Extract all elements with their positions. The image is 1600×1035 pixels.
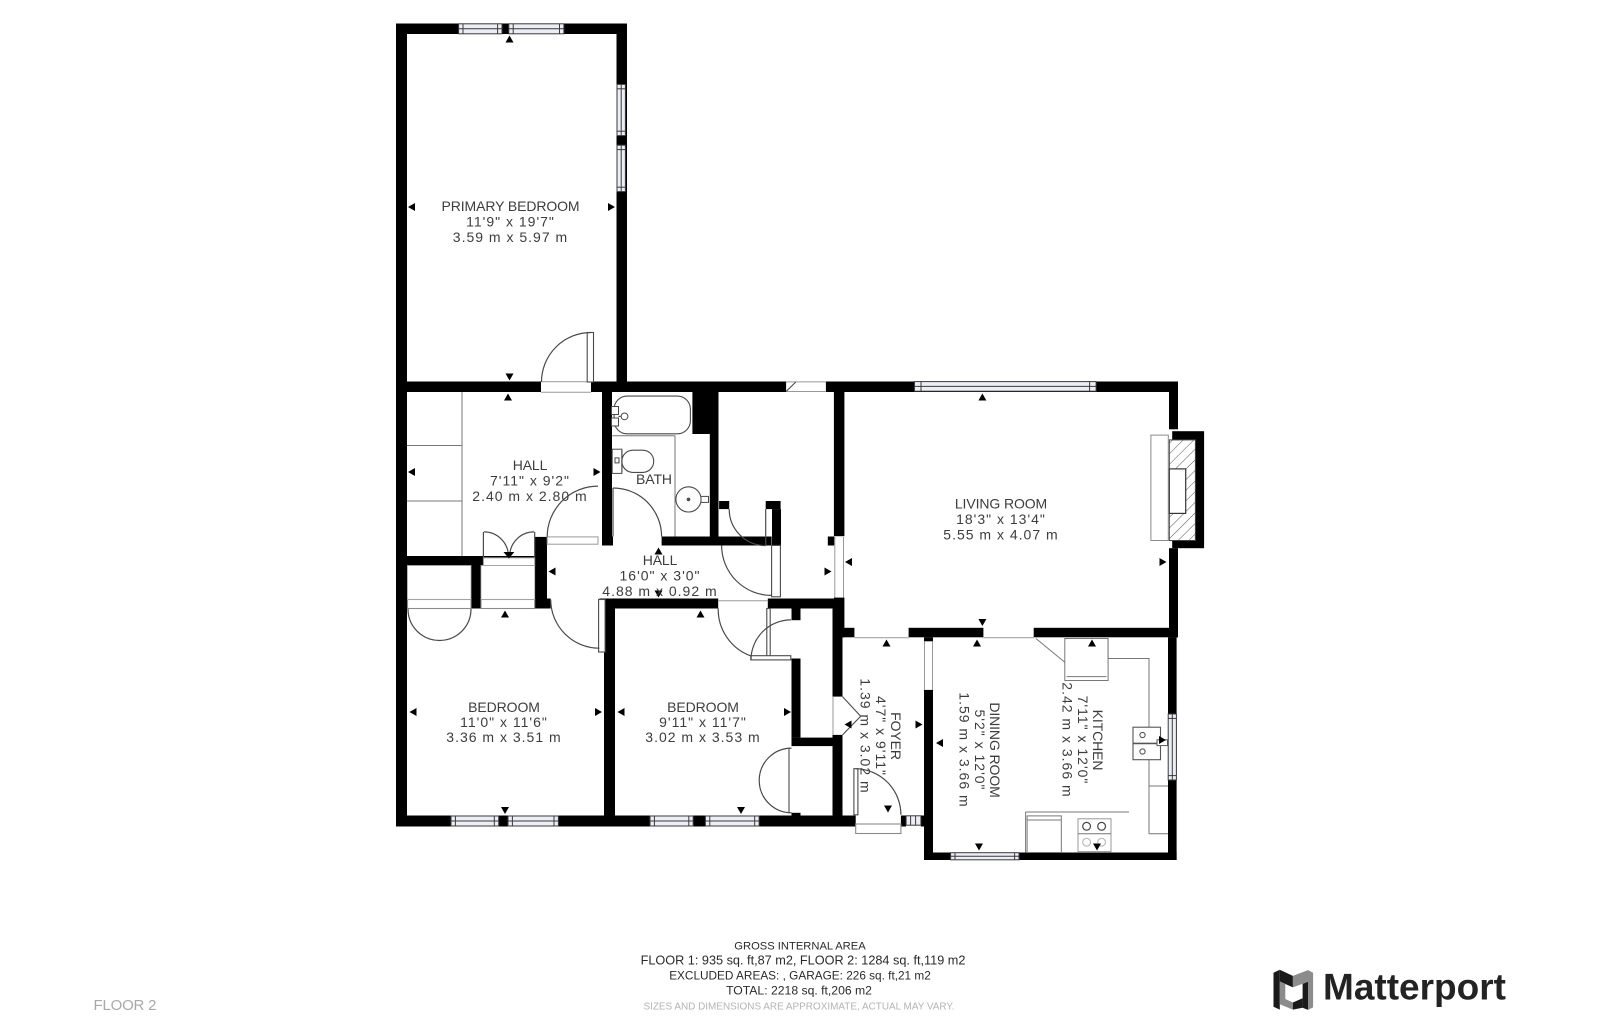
svg-text:11'0" x 11'6": 11'0" x 11'6" [460,714,548,730]
svg-text:GROSS INTERNAL AREA: GROSS INTERNAL AREA [734,941,866,953]
svg-text:11'9" x 19'7": 11'9" x 19'7" [466,214,555,230]
svg-text:KITCHEN: KITCHEN [1090,710,1106,771]
svg-text:FOYER: FOYER [888,712,904,760]
svg-text:Matterport: Matterport [1323,967,1506,1008]
svg-text:TOTAL: 2218 sq. ft,206 m2: TOTAL: 2218 sq. ft,206 m2 [726,984,872,998]
svg-text:4.88 m x 0.92 m: 4.88 m x 0.92 m [602,583,717,599]
svg-text:7'11" x 9'2": 7'11" x 9'2" [490,472,570,488]
svg-text:FLOOR 2: FLOOR 2 [94,997,157,1014]
svg-text:2.42 m x 3.66 m: 2.42 m x 3.66 m [1059,682,1075,797]
svg-text:DINING ROOM: DINING ROOM [987,702,1003,797]
svg-text:2.40 m x 2.80 m: 2.40 m x 2.80 m [472,488,587,504]
svg-text:LIVING ROOM: LIVING ROOM [955,496,1047,512]
svg-text:9'11" x 11'7": 9'11" x 11'7" [659,714,747,730]
svg-text:5'2" x 12'0": 5'2" x 12'0" [972,710,988,791]
svg-text:3.36 m x 3.51 m: 3.36 m x 3.51 m [446,729,561,745]
svg-text:18'3" x 13'4": 18'3" x 13'4" [956,511,1046,527]
svg-text:EXCLUDED AREAS: , GARAGE: 226: EXCLUDED AREAS: , GARAGE: 226 sq. ft,21 … [669,969,931,983]
svg-text:BEDROOM: BEDROOM [667,699,739,715]
svg-text:1.39 m x 3.02 m: 1.39 m x 3.02 m [857,678,873,793]
svg-text:FLOOR 1: 935 sq. ft,87 m2, FLO: FLOOR 1: 935 sq. ft,87 m2, FLOOR 2: 1284… [641,954,966,968]
svg-text:PRIMARY BEDROOM: PRIMARY BEDROOM [441,198,579,214]
svg-text:BEDROOM: BEDROOM [468,699,540,715]
svg-text:1.59 m x 3.66 m: 1.59 m x 3.66 m [956,692,972,807]
svg-text:3.59 m x 5.97 m: 3.59 m x 5.97 m [453,229,568,245]
svg-text:HALL: HALL [513,457,548,473]
svg-text:BATH: BATH [636,471,672,487]
svg-text:16'0" x 3'0": 16'0" x 3'0" [620,567,701,583]
svg-text:3.02 m x 3.53 m: 3.02 m x 3.53 m [645,729,760,745]
svg-text:4'7" x 9'11": 4'7" x 9'11" [873,696,889,776]
svg-text:5.55 m x 4.07 m: 5.55 m x 4.07 m [943,527,1058,543]
svg-text:SIZES AND DIMENSIONS ARE APPRO: SIZES AND DIMENSIONS ARE APPROXIMATE, AC… [643,1002,954,1013]
svg-text:HALL: HALL [643,552,678,568]
svg-text:7'11" x 12'0": 7'11" x 12'0" [1075,696,1091,785]
